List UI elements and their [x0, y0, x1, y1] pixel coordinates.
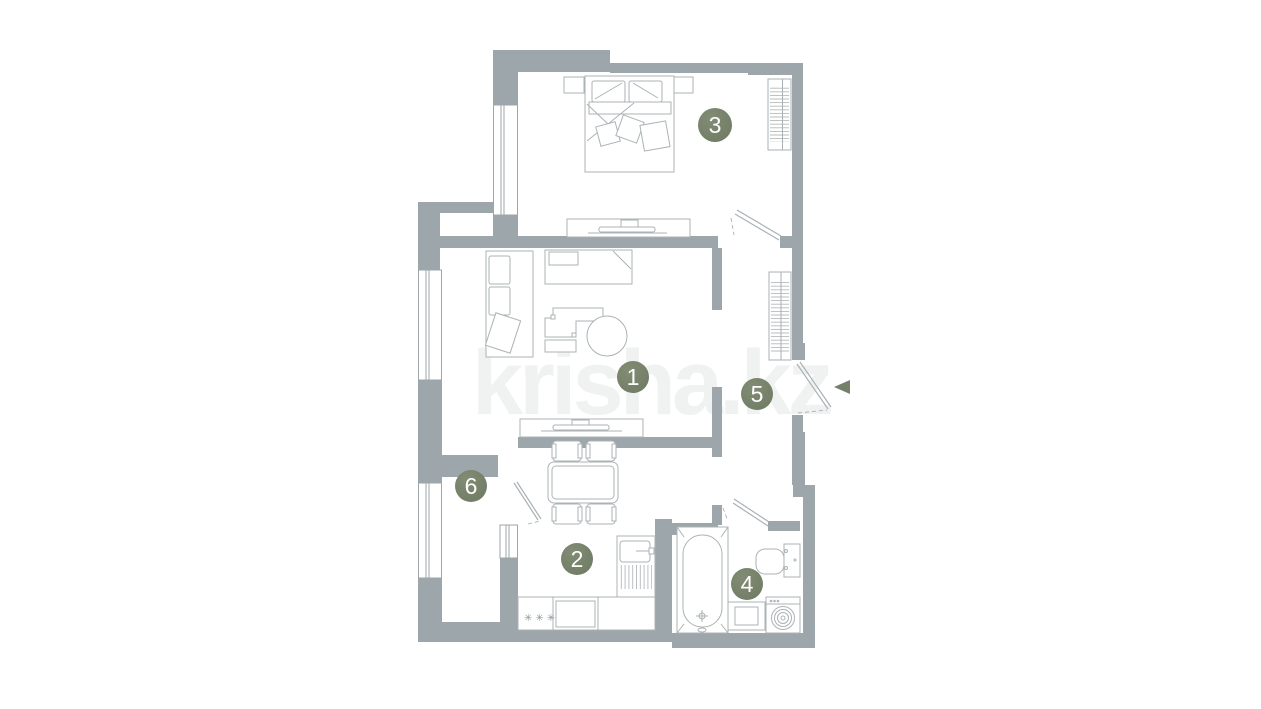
- dining-table-top: [552, 466, 614, 499]
- floor-plan-canvas: krisha.kz: [0, 0, 1261, 709]
- living-tv-stand: [520, 419, 643, 437]
- stove-burners: ✳✳✳: [524, 613, 558, 624]
- room-badge-1: 1: [617, 361, 649, 393]
- svg-text:3: 3: [709, 112, 722, 138]
- bathtub: [677, 527, 728, 633]
- balcony-window: [419, 483, 442, 578]
- washing-machine: [766, 597, 800, 633]
- bedroom-dresser-tv: [567, 219, 690, 237]
- double-bed: [585, 76, 674, 172]
- room-badge-6: 6: [455, 470, 487, 502]
- living-room-window: [419, 270, 442, 380]
- svg-text:6: 6: [465, 473, 478, 499]
- bathroom-sink: [728, 602, 765, 630]
- room-badge-5: 5: [741, 378, 773, 410]
- room-badge-3: 3: [698, 108, 732, 142]
- dining-chair: [586, 441, 616, 461]
- room-badge-4: 4: [731, 568, 763, 600]
- room-badge-2: 2: [561, 543, 593, 575]
- corner-sofa: [485, 251, 533, 357]
- daybed: [545, 250, 632, 284]
- kitchen-sink-unit: [617, 536, 655, 597]
- bedroom-radiator: [768, 79, 791, 150]
- svg-text:4: 4: [741, 571, 754, 597]
- dining-chair: [586, 504, 616, 524]
- dish-drainer: [619, 565, 652, 589]
- round-table: [587, 316, 627, 356]
- nightstand-left: [564, 77, 584, 93]
- balcony-partition-window: [500, 525, 518, 558]
- hallway-radiator: [769, 272, 791, 360]
- dining-chair: [552, 504, 582, 524]
- nightstand-right: [674, 77, 693, 93]
- floor-plan: krisha.kz: [0, 0, 1261, 709]
- svg-text:2: 2: [571, 546, 584, 572]
- svg-text:1: 1: [627, 364, 640, 390]
- bedroom-window: [494, 105, 518, 215]
- dining-chair: [552, 441, 582, 461]
- svg-text:5: 5: [751, 381, 764, 407]
- coffee-table: [545, 340, 576, 352]
